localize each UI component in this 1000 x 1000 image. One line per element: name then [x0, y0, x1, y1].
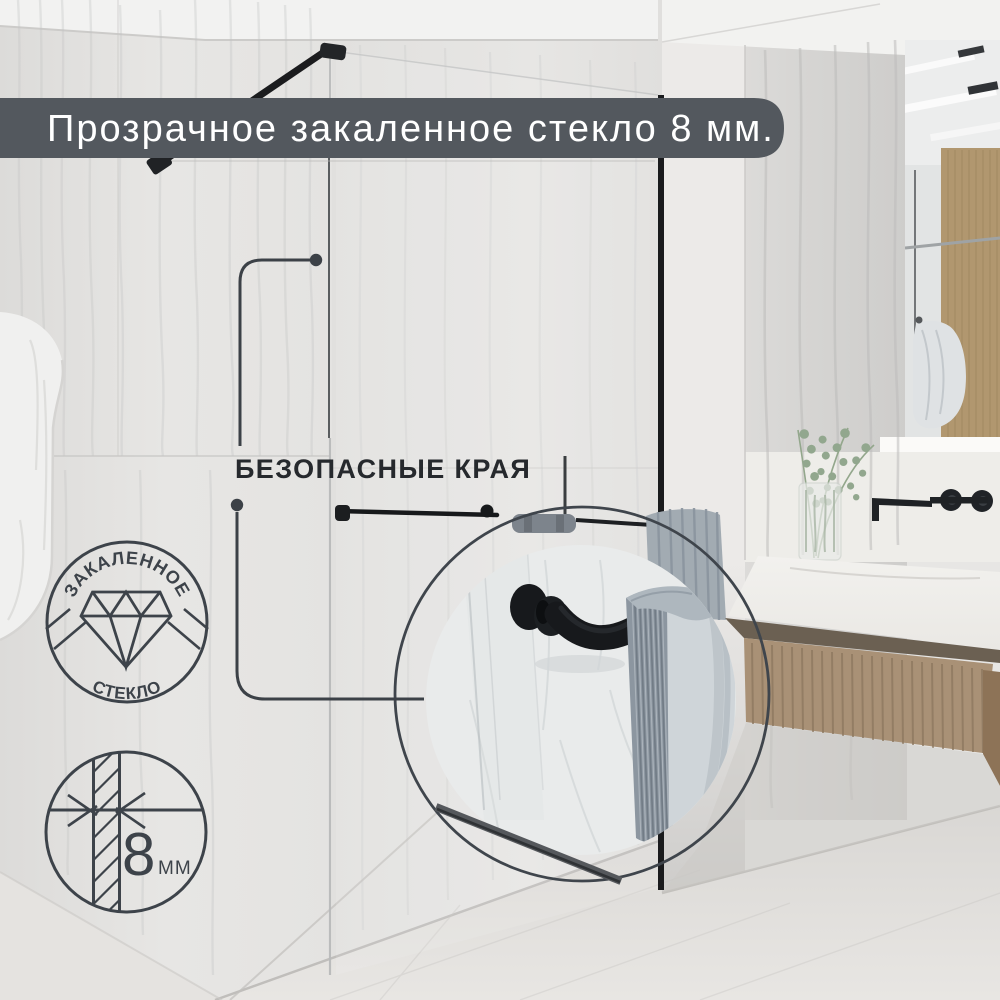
svg-text:8: 8 [122, 821, 155, 888]
svg-text:ММ: ММ [158, 858, 192, 879]
svg-text:Прозрачное закаленное стекло 8: Прозрачное закаленное стекло 8 мм. [47, 108, 775, 150]
svg-text:БЕЗОПАСНЫЕ КРАЯ: БЕЗОПАСНЫЕ КРАЯ [235, 454, 531, 484]
